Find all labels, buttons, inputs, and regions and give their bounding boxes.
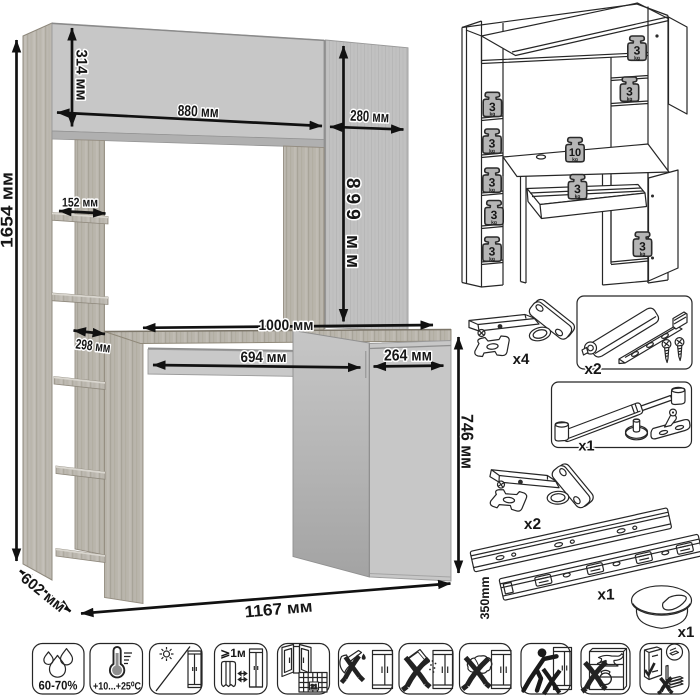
svg-text:kg: kg [634, 55, 640, 61]
svg-text:x1: x1 [578, 439, 594, 455]
svg-text:x4: x4 [513, 351, 530, 368]
svg-text:kg: kg [572, 157, 578, 163]
svg-text:880 мм: 880 мм [177, 103, 219, 122]
svg-text:21: 21 [311, 684, 318, 691]
svg-text:x2: x2 [584, 361, 601, 378]
svg-text:314 мм: 314 мм [73, 50, 90, 101]
svg-text:kg: kg [627, 96, 633, 102]
svg-text:kg: kg [491, 220, 497, 226]
svg-text:kg: kg [575, 194, 581, 200]
svg-text:350mm: 350mm [478, 576, 492, 619]
svg-text:kg: kg [489, 187, 495, 193]
svg-text:746 мм: 746 мм [458, 414, 477, 469]
svg-text:kg: kg [489, 148, 495, 154]
svg-text:280 мм: 280 мм [350, 108, 390, 127]
svg-text:x1: x1 [678, 624, 695, 641]
svg-text:694 мм: 694 мм [241, 349, 287, 366]
svg-text:x2: x2 [524, 516, 541, 533]
svg-text:152 мм: 152 мм [62, 195, 98, 209]
svg-text:1000 мм: 1000 мм [259, 317, 314, 334]
svg-text:+10...+25⁰С: +10...+25⁰С [93, 681, 141, 693]
svg-text:kg: kg [489, 112, 495, 118]
svg-text:1654 мм: 1654 мм [0, 172, 17, 248]
svg-text:x1: x1 [597, 587, 615, 604]
svg-text:264 мм: 264 мм [384, 348, 432, 365]
svg-text:60-70%: 60-70% [39, 679, 78, 693]
svg-text:kg: kg [640, 251, 646, 257]
svg-text:kg: kg [489, 256, 495, 262]
svg-text:899 мм: 899 мм [342, 178, 363, 273]
svg-text:⩾1м: ⩾1м [220, 646, 246, 660]
